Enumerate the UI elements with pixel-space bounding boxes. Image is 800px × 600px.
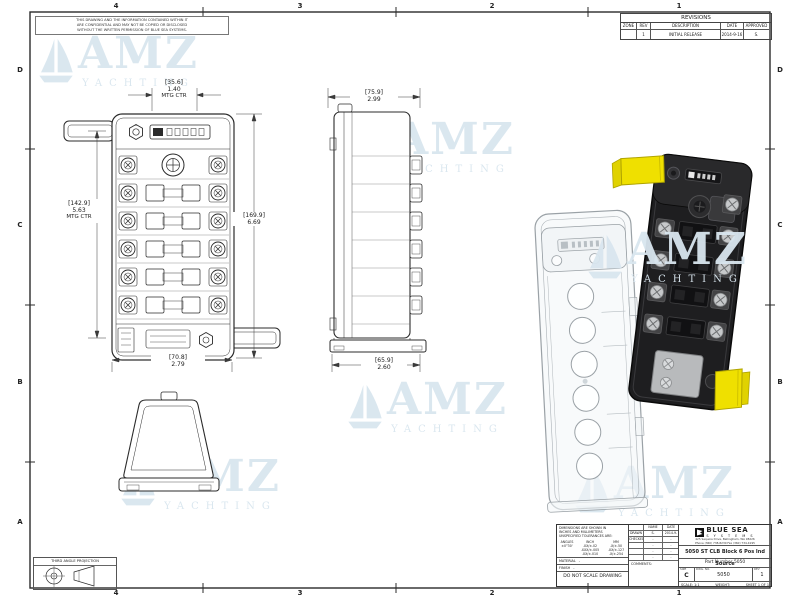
material-label: MATERIAL bbox=[559, 558, 576, 564]
yellow-label-bottom bbox=[711, 366, 752, 414]
drawing-sheet: AMZYACHTING AMZYACHTING AMZYACHTING AMZY… bbox=[0, 0, 800, 600]
revisions-table: REVISIONS ZONE REV DESCRIPTION DATE APPR… bbox=[620, 13, 772, 40]
signature-block: NAME DATE DRAWN S. SOMMERS 2014-9-16 CHE… bbox=[629, 525, 679, 586]
dim-side-top: [75.9] 2.99 bbox=[350, 89, 398, 103]
finish-label: FINISH bbox=[559, 565, 570, 571]
confidentiality-note: THIS DRAWING AND THE INFORMATION CONTAIN… bbox=[35, 16, 229, 35]
projection-box: THIRD ANGLE PROJECTION bbox=[33, 557, 117, 590]
weight-label: WEIGHT: bbox=[715, 582, 730, 586]
do-not-scale-note: DO NOT SCALE DRAWING bbox=[557, 571, 628, 581]
dwg-no-cell: DWG. NO. 5050 bbox=[695, 568, 753, 581]
iso-clear-cover bbox=[532, 210, 647, 513]
dim-front-top: [35.6] 1.40 MTG CTR bbox=[146, 79, 202, 100]
zone-col-label: 2 bbox=[485, 589, 499, 597]
part-number: Part Number 5050 bbox=[679, 558, 771, 567]
revision-row: 1 INITIAL RELEASE 2014-9-16 S. SOMMERS bbox=[621, 30, 771, 39]
zone-col-label: 1 bbox=[672, 589, 686, 597]
tolerance-block: DIMENSIONS ARE SHOWN IN INCHES AND MILLI… bbox=[557, 525, 629, 586]
zone-row-label: D bbox=[773, 66, 787, 74]
zone-col-label: 1 bbox=[672, 2, 686, 10]
zone-row-label: A bbox=[773, 518, 787, 526]
zone-col-label: 3 bbox=[293, 589, 307, 597]
cover-profile-view bbox=[119, 392, 219, 491]
sheet-label: SHEET 1 OF 1 bbox=[746, 582, 769, 586]
side-view bbox=[330, 104, 426, 352]
company-block: BLUE SEA S Y S T E M S 425 Sequoia Drive… bbox=[679, 525, 771, 586]
zone-col-label: 4 bbox=[109, 2, 123, 10]
zone-row-label: A bbox=[13, 518, 27, 526]
dim-front-left: [142.9] 5.63 MTG CTR bbox=[55, 200, 103, 221]
dim-side-bottom: [65.9] 2.60 bbox=[361, 357, 407, 371]
zone-col-label: 2 bbox=[485, 2, 499, 10]
projection-label: THIRD ANGLE PROJECTION bbox=[34, 558, 116, 566]
zone-row-label: C bbox=[13, 221, 27, 229]
dim-front-bottom: [70.8] 2.79 bbox=[151, 354, 205, 368]
zone-row-label: D bbox=[13, 66, 27, 74]
zone-row-label: C bbox=[773, 221, 787, 229]
zone-row-label: B bbox=[13, 378, 27, 386]
dim-front-right: [169.9] 6.69 bbox=[231, 212, 277, 226]
size-cell: SIZE C bbox=[679, 568, 695, 581]
front-view bbox=[64, 114, 280, 360]
zone-col-label: 4 bbox=[109, 589, 123, 597]
zone-col-label: 3 bbox=[293, 2, 307, 10]
drawing-linework bbox=[0, 0, 800, 600]
company-name: BLUE SEA bbox=[706, 527, 754, 534]
comments-label: COMMENTS: bbox=[629, 561, 678, 567]
revisions-header-row: ZONE REV DESCRIPTION DATE APPROVED bbox=[621, 23, 771, 30]
drawing-title: 5050 ST CLB Block 6 Pos Ind Source bbox=[679, 545, 771, 558]
blue-sea-flag-icon bbox=[695, 528, 704, 537]
zone-row-label: B bbox=[773, 378, 787, 386]
scale-label: SCALE: 1:1 bbox=[681, 582, 700, 586]
title-block: DIMENSIONS ARE SHOWN IN INCHES AND MILLI… bbox=[556, 524, 772, 587]
revisions-title: REVISIONS bbox=[621, 14, 771, 23]
rev-cell: REV 1 bbox=[753, 568, 771, 581]
